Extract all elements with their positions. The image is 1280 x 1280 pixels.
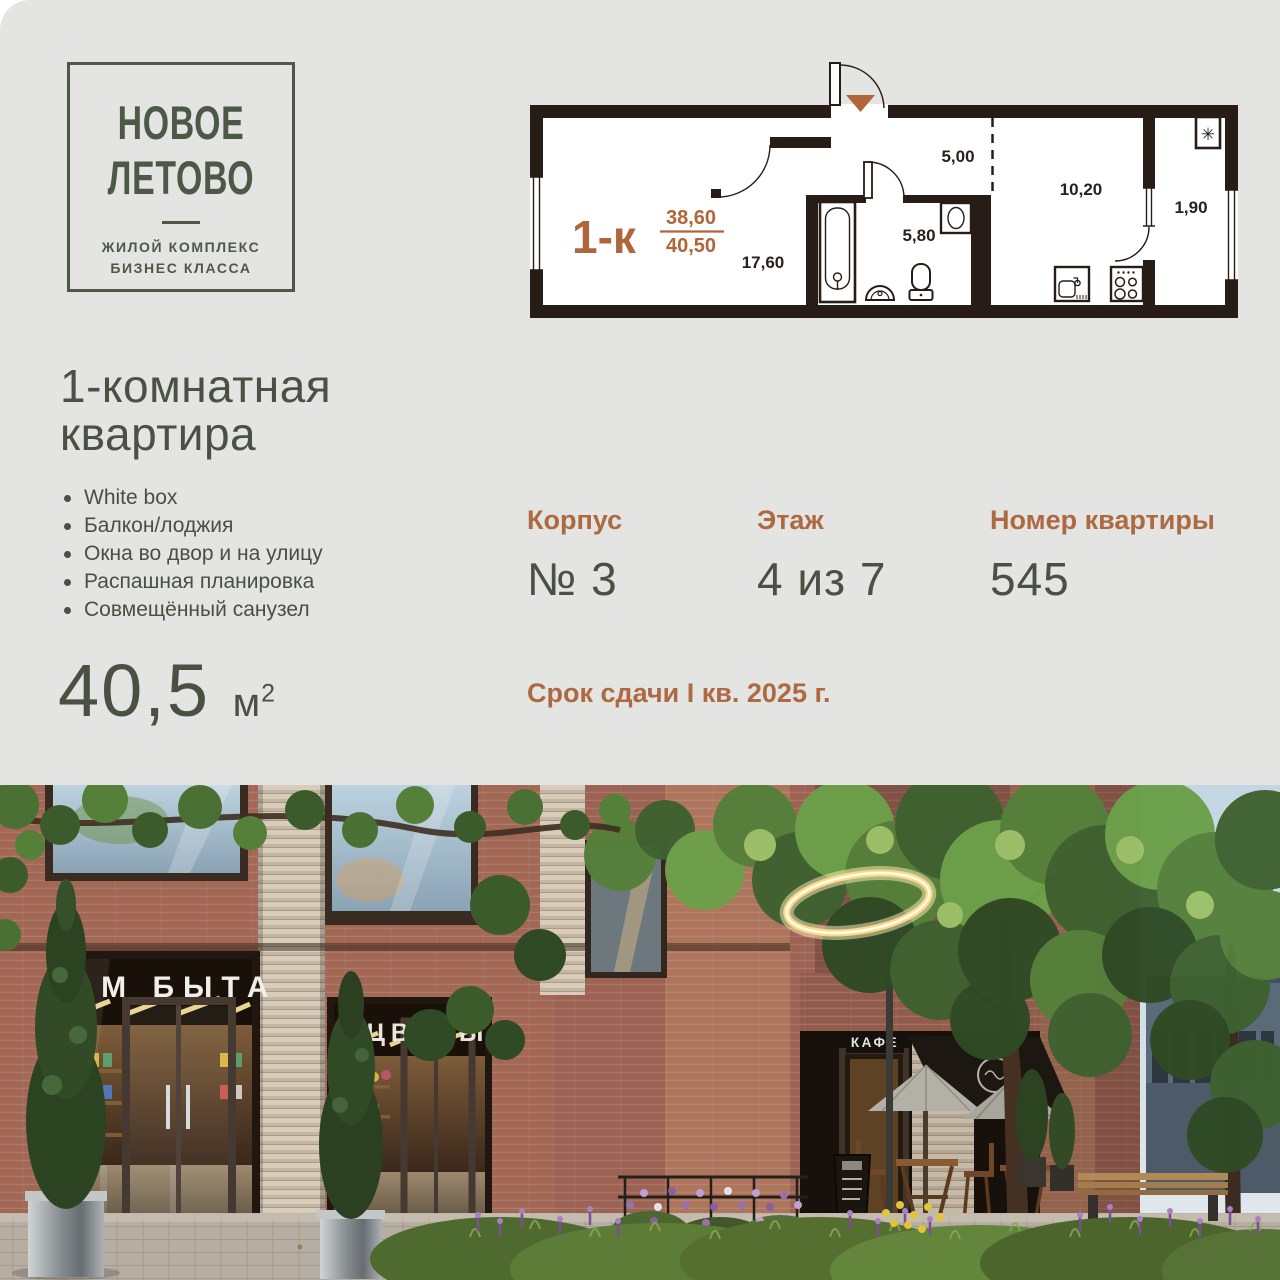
bullet-icon	[64, 523, 71, 530]
label-room-area: 17,60	[742, 253, 785, 272]
apartment-details: Корпус № 3 Этаж 4 из 7 Номер квартиры 54…	[527, 505, 1215, 606]
entrance-door-leaf	[830, 63, 840, 105]
feature-item: Распашная планировка	[64, 568, 323, 596]
right-window-gap	[1225, 190, 1238, 280]
floorplan: ✳	[528, 55, 1242, 321]
detail-apartment-number: Номер квартиры 545	[990, 505, 1215, 606]
bathtub-icon	[820, 202, 855, 302]
area-value: 40,5	[58, 649, 210, 732]
bullet-icon	[64, 495, 71, 502]
brand-logo: НОВОЕ ЛЕТОВО ЖИЛОЙ КОМПЛЕКС БИЗНЕС КЛАСС…	[67, 62, 295, 292]
label-hall-area: 5,00	[941, 147, 974, 166]
label-balcony-area: 1,90	[1174, 198, 1207, 217]
bullet-icon	[64, 551, 71, 558]
deadline-label: Срок сдачи I кв. 2025 г.	[527, 678, 831, 709]
bath-door-leaf	[864, 162, 872, 198]
brand-name-line2: ЛЕТОВО	[101, 150, 261, 205]
asterisk-icon: ✳	[1201, 125, 1215, 145]
detail-floor: Этаж 4 из 7	[757, 505, 990, 606]
feature-item: Окна во двор и на улицу	[64, 540, 323, 568]
left-window-gap	[530, 177, 543, 270]
logo-divider	[162, 221, 200, 224]
building-photo: ДОМ БЫТА ЦВЕТЫ	[0, 785, 1280, 1280]
page-title: 1-комнатная квартира	[60, 362, 331, 458]
total-area-value: 40,50	[666, 235, 716, 257]
total-area: 40,5 м2	[58, 648, 276, 733]
kitchen-sink-icon	[1055, 267, 1089, 301]
wall-sink-icon	[941, 203, 971, 233]
feature-item: White box	[64, 484, 323, 512]
brand-tagline: ЖИЛОЙ КОМПЛЕКС БИЗНЕС КЛАССА	[70, 237, 292, 279]
stove-icon	[1111, 267, 1143, 301]
detail-building: Корпус № 3	[527, 505, 757, 606]
label-kitchen-area: 10,20	[1060, 180, 1103, 199]
feature-item: Балкон/лоджия	[64, 512, 323, 540]
feature-list: White box Балкон/лоджия Окна во двор и н…	[64, 484, 323, 624]
living-area-value: 38,60	[666, 207, 716, 229]
toilet-icon	[910, 264, 933, 300]
area-unit: м2	[233, 681, 276, 725]
bullet-icon	[64, 579, 71, 586]
apartment-type-label: 1-к	[572, 211, 637, 263]
bullet-icon	[64, 607, 71, 614]
feature-item: Совмещённый санузел	[64, 596, 323, 624]
flyer-page: НОВОЕ ЛЕТОВО ЖИЛОЙ КОМПЛЕКС БИЗНЕС КЛАСС…	[0, 0, 1280, 1280]
brand-name-line1: НОВОЕ	[101, 95, 261, 150]
label-bathroom-area: 5,80	[902, 226, 935, 245]
store-door	[126, 1001, 232, 1241]
